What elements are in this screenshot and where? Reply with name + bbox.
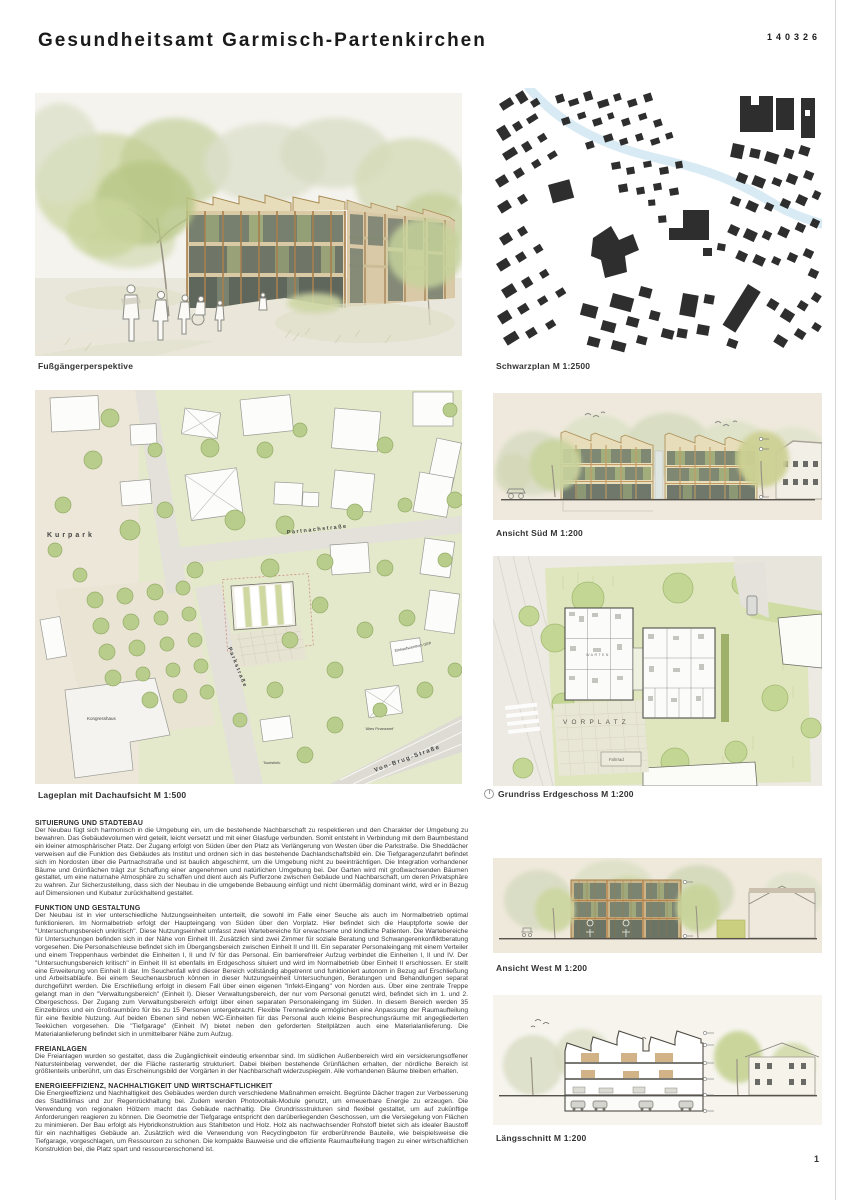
north-arrow-icon [484,789,494,799]
label-warten: WARTEN [586,653,610,657]
ansicht-sued-illustration [493,393,822,520]
label-touristinfo: Touristinfo [263,761,280,765]
section-body: Der Neubau fügt sich harmonisch in die U… [35,827,468,898]
figure-perspective [35,93,462,356]
schwarzplan-illustration [493,88,822,355]
caption-laengsschnitt: Längsschnitt M 1:200 [496,1133,586,1143]
figure-laengsschnitt [493,995,822,1125]
caption-schwarzplan: Schwarzplan M 1:2500 [496,361,590,371]
label-vorplatz: VORPLATZ [563,719,630,726]
label-fahrrad: Fahrrad [609,757,624,762]
section-heading: FREIANLAGEN [35,1046,468,1053]
section-body: Die Freianlagen wurden so gestaltet, das… [35,1053,468,1077]
figure-ansicht-sued [493,393,822,520]
section-body: Der Neubau ist in vier unterschiedliche … [35,912,468,1039]
figure-schwarzplan [493,88,822,355]
label-altes-finanzamt: 'Altes Finanzamt' [365,727,394,731]
figure-lageplan: Kurpark Partnachstraße Parkstraße Kongre… [35,390,462,784]
page-number: 1 [814,1154,819,1164]
lageplan-illustration: Kurpark Partnachstraße Parkstraße Kongre… [35,390,462,784]
page-edge-line [835,0,836,1200]
perspective-illustration [35,93,462,356]
section-heading: ENERGIEEFFIZIENZ, NACHHALTIGKEIT UND WIR… [35,1083,468,1090]
caption-grundriss: Grundriss Erdgeschoss M 1:200 [498,789,634,799]
label-kongresshaus: Kongresshaus [87,716,117,721]
section-heading: FUNKTION UND GESTALTUNG [35,905,468,912]
section-body: Die Energieeffizienz und Nachhaltigkeit … [35,1090,468,1153]
section-energieeffizienz: ENERGIEEFFIZIENZ, NACHHALTIGKEIT UND WIR… [35,1083,468,1153]
caption-ansicht-sued: Ansicht Süd M 1:200 [496,528,583,538]
page-title: Gesundheitsamt Garmisch-Partenkirchen [38,30,487,52]
ansicht-west-illustration [493,858,822,953]
caption-perspective: Fußgängerperspektive [38,361,133,371]
entry-code: 140326 [767,32,821,42]
section-situierung: SITUIERUNG UND STADTEBAU Der Neubau fügt… [35,820,468,898]
figure-ansicht-west [493,858,822,953]
section-freianlagen: FREIANLAGEN Die Freianlagen wurden so ge… [35,1046,468,1077]
description-text-column: SITUIERUNG UND STADTEBAU Der Neubau fügt… [35,820,468,1161]
figure-grundriss: WARTEN VORPLATZ [493,556,822,786]
caption-ansicht-west: Ansicht West M 1:200 [496,963,587,973]
caption-grundriss-row: Grundriss Erdgeschoss M 1:200 [484,789,634,799]
label-kurpark: Kurpark [47,532,95,539]
competition-board: Gesundheitsamt Garmisch-Partenkirchen 14… [0,0,849,1200]
laengsschnitt-illustration [493,995,822,1125]
caption-lageplan: Lageplan mit Dachaufsicht M 1:500 [38,790,186,800]
grundriss-illustration: WARTEN VORPLATZ [493,556,822,786]
section-funktion: FUNKTION UND GESTALTUNG Der Neubau ist i… [35,905,468,1039]
section-heading: SITUIERUNG UND STADTEBAU [35,820,468,827]
